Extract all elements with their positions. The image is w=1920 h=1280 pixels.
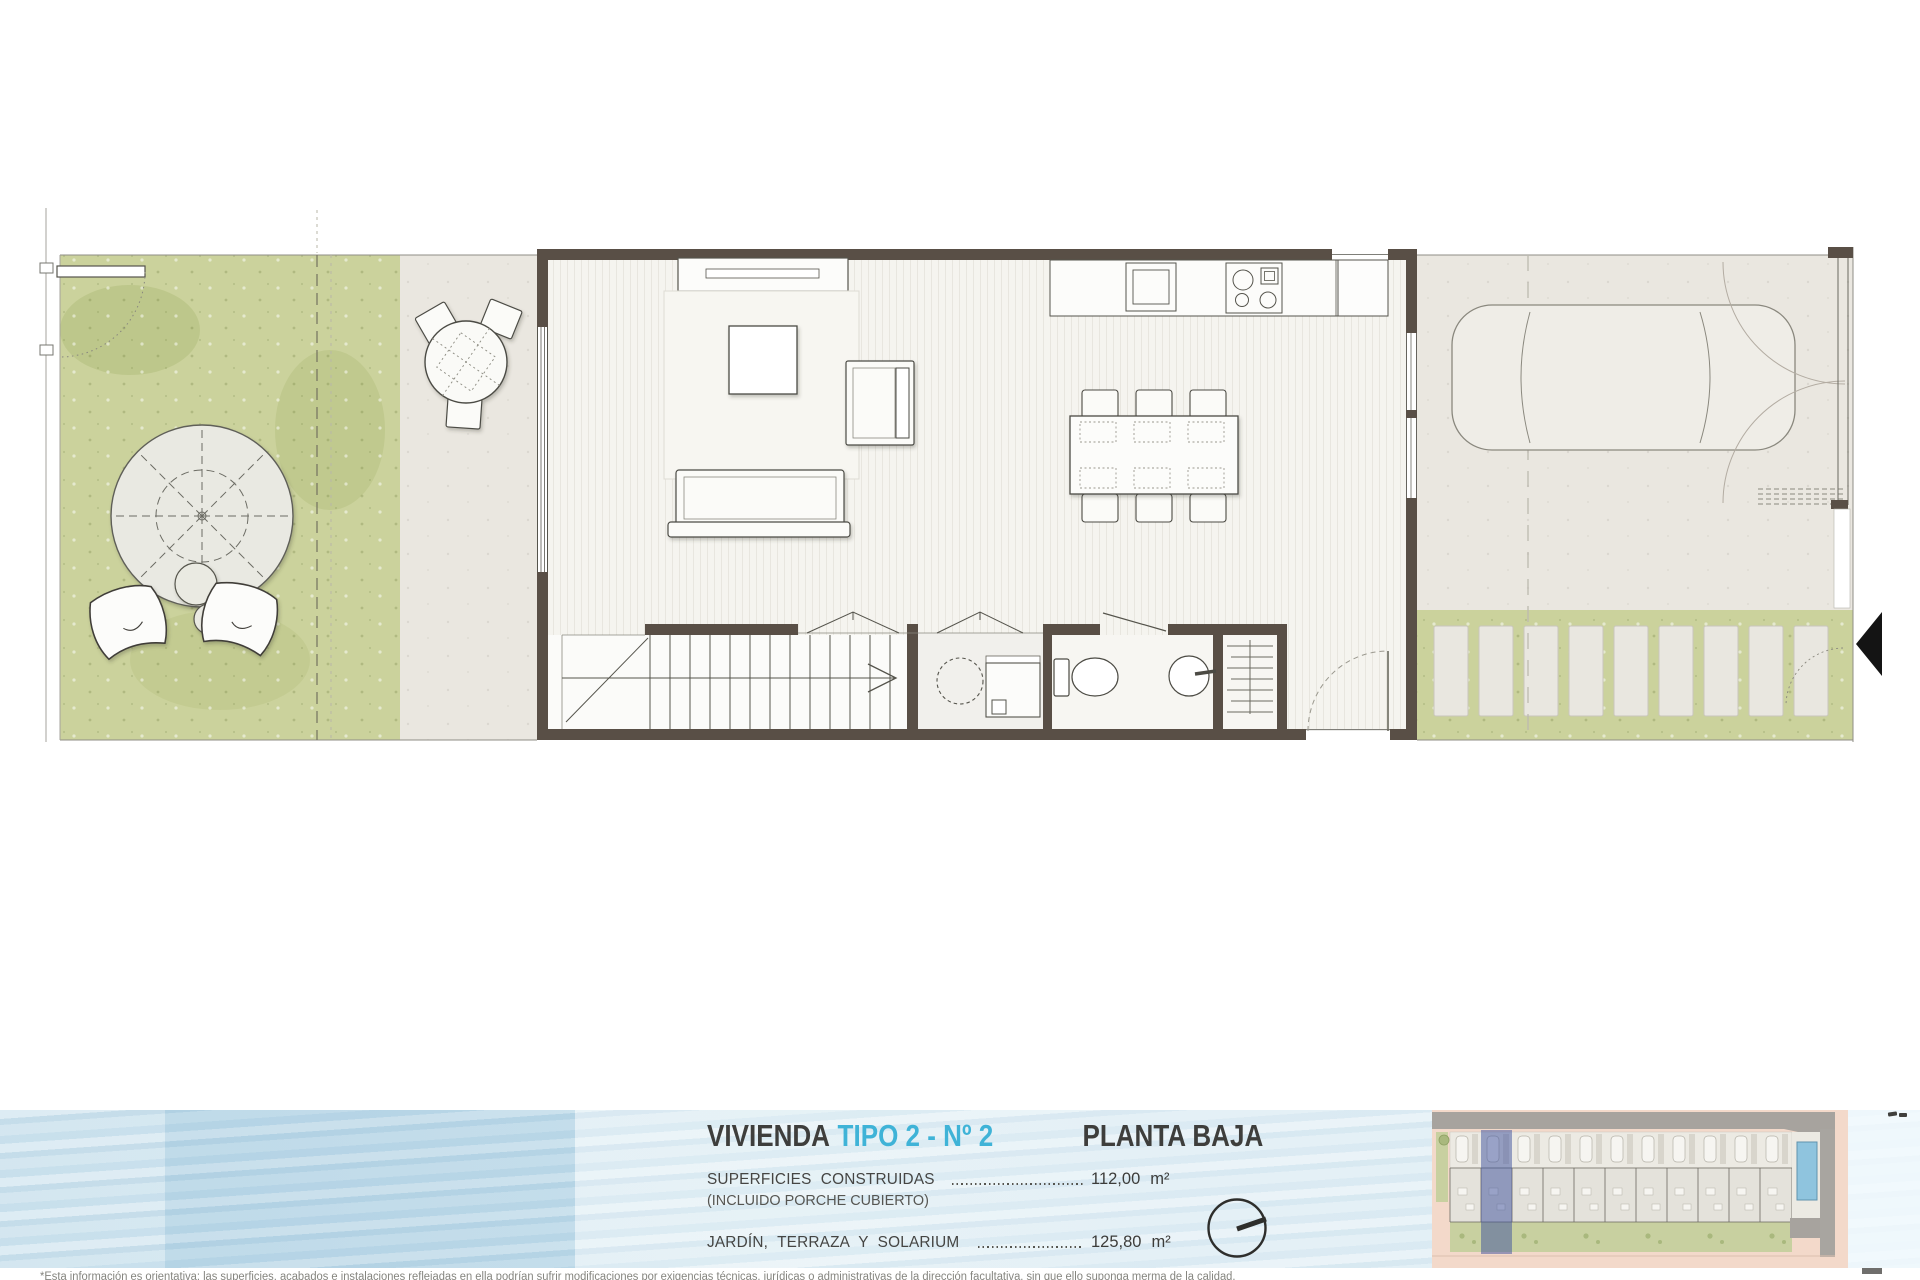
water-patch: [0, 1110, 165, 1268]
kitchen-counter: [1050, 260, 1388, 316]
surface-note: (INCLUIDO PORCHE CUBIERTO): [707, 1192, 929, 1209]
surface-row: SUPERFICIES CONSTRUIDAS 112,00 m²: [707, 1170, 1179, 1189]
kitchen-window: [1332, 249, 1388, 260]
water-patch: [165, 1110, 575, 1268]
surface-label: SUPERFICIES CONSTRUIDAS: [707, 1171, 935, 1189]
dotted-leader: [952, 1183, 1083, 1185]
page-corner-mark: [1899, 1113, 1907, 1117]
north-compass-icon: [1205, 1194, 1275, 1264]
floor-plan-sheet: VIVIENDATIPO 2 - Nº 2 PLANTA BAJA SUPERF…: [0, 0, 1920, 1280]
surface-value: 125,80: [1091, 1233, 1141, 1252]
surface-value: 112,00: [1091, 1170, 1140, 1189]
community-pool: [1797, 1142, 1817, 1200]
dwelling-title: VIVIENDATIPO 2 - Nº 2: [707, 1120, 1048, 1151]
site-road-top: [1432, 1112, 1784, 1129]
site-tree: [1439, 1135, 1449, 1145]
footer-corner-bar: [1862, 1268, 1882, 1274]
site-road-right: [1820, 1129, 1835, 1257]
surface-table: SUPERFICIES CONSTRUIDAS 112,00 m² (INCLU…: [707, 1170, 1179, 1252]
living-room-window: [537, 327, 548, 572]
title-row: VIVIENDATIPO 2 - Nº 2 PLANTA BAJA: [707, 1120, 1263, 1151]
toilet: [1054, 658, 1118, 696]
stepping-stone-path: [1417, 610, 1853, 740]
surface-unit: m²: [1151, 1233, 1170, 1252]
dining-set: [1070, 390, 1238, 522]
armchair: [846, 361, 914, 445]
dwelling-title-prefix: VIVIENDA: [707, 1118, 830, 1153]
highlighted-unit: [1481, 1130, 1512, 1254]
pedestrian-gate: [1834, 509, 1850, 608]
water-patch: [1848, 1110, 1920, 1268]
entrance-arrow-icon: [1856, 612, 1882, 676]
dwelling-title-type: TIPO 2 - Nº 2: [838, 1118, 994, 1153]
parked-car: [1452, 305, 1795, 450]
plan-level-label: PLANTA BAJA: [1048, 1120, 1263, 1151]
coffee-table: [729, 326, 797, 394]
dotted-leader: [978, 1246, 1083, 1248]
surface-label: JARDÍN, TERRAZA Y SOLARIUM: [707, 1234, 959, 1252]
sofa: [668, 470, 850, 537]
site-plan-thumbnail: [1432, 1110, 1848, 1268]
fridge-unit: [1338, 260, 1388, 316]
tv-cabinet: [678, 258, 848, 291]
stairwell-floor: [548, 635, 907, 729]
footer-band: VIVIENDATIPO 2 - Nº 2 PLANTA BAJA SUPERF…: [0, 1110, 1920, 1268]
surface-row: JARDÍN, TERRAZA Y SOLARIUM 125,80 m²: [707, 1233, 1179, 1252]
ground-floor-plan: [0, 0, 1920, 1280]
disclaimer-text: *Esta información es orientativa: las su…: [40, 1271, 1447, 1280]
surface-unit: m²: [1150, 1170, 1169, 1189]
